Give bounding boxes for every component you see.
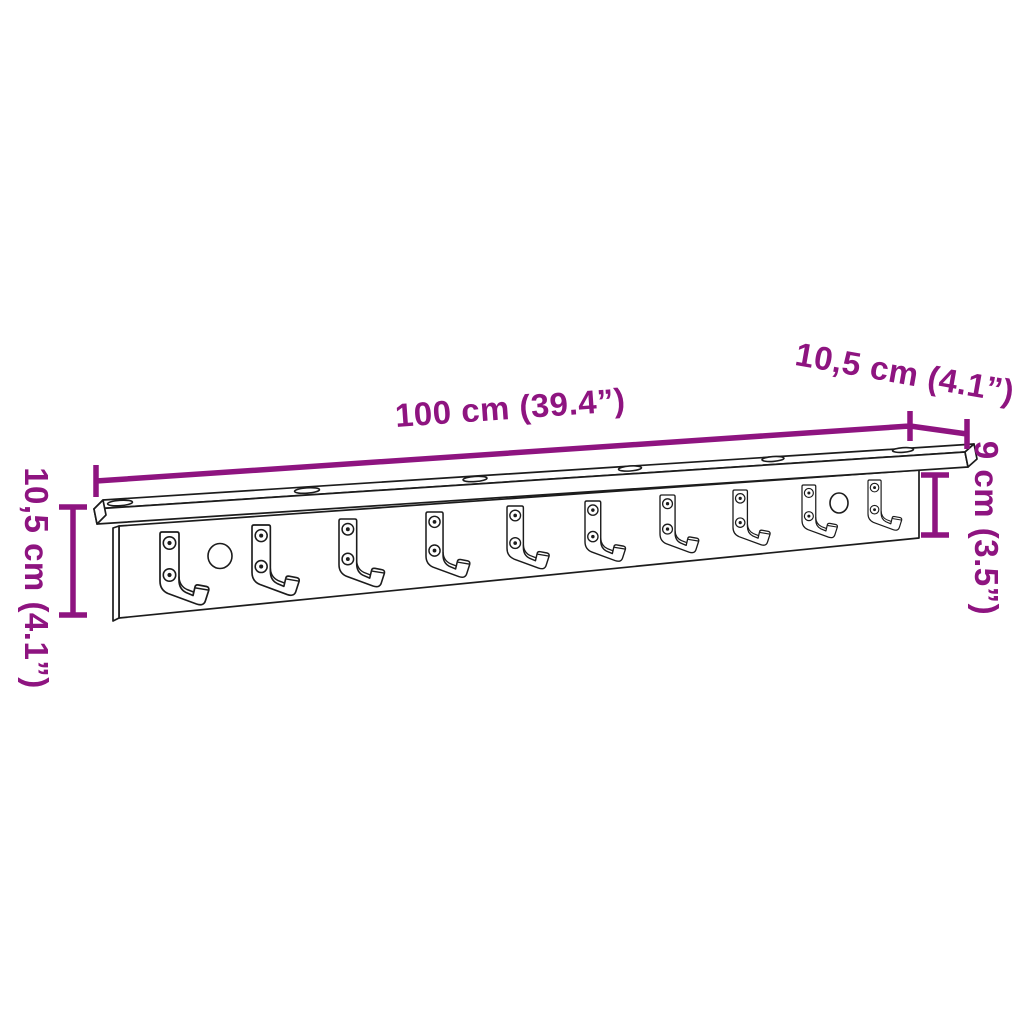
mount-hole-right (830, 493, 848, 513)
depth-dimension-label: 10,5 cm (4.1”) (793, 335, 1018, 410)
height-right-dimension-line (921, 475, 949, 535)
back-panel-left-end (113, 526, 119, 621)
height-right-dimension-label: 9 cm (3.5”) (968, 441, 1005, 615)
product-dimension-diagram: 100 cm (39.4”) 10,5 cm (4.1”) 9 cm (3.5”… (0, 0, 1024, 1024)
height-left-dimension-label: 10,5 cm (4.1”) (18, 467, 55, 689)
width-dimension-label: 100 cm (39.4”) (394, 381, 627, 434)
height-left-dimension-line (59, 507, 87, 615)
mount-hole-left (208, 544, 232, 569)
